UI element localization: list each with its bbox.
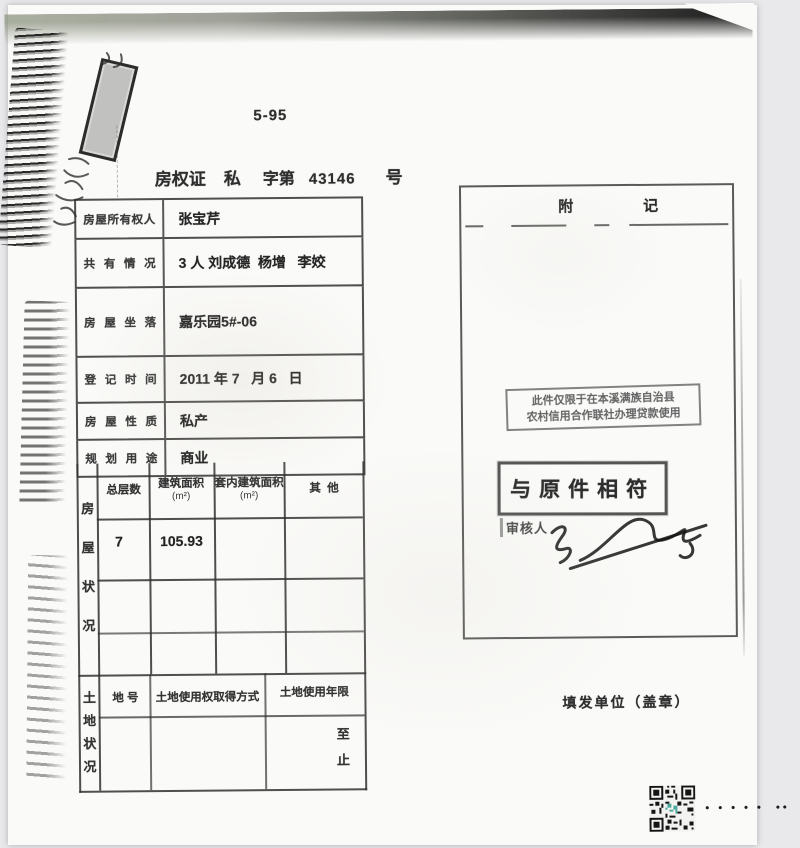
- row-label-text: 房屋所有权人: [83, 211, 155, 228]
- notes-title-a: 附: [558, 195, 573, 216]
- grid-line: [362, 461, 367, 790]
- row-value: 3 人 刘成德 杨增 李姣: [164, 237, 361, 286]
- row-label-text: 共有情况: [84, 255, 156, 272]
- col-header-inner-area-unit: (m²): [215, 490, 284, 502]
- notes-rule-segment: [511, 225, 566, 227]
- handwritten-signature: [534, 485, 725, 577]
- col-header-floors: 总层数: [99, 481, 149, 497]
- notes-title-b: 记: [643, 195, 658, 216]
- col-header-area: 建筑面积: [150, 475, 211, 492]
- notes-rule-segment: [629, 223, 728, 226]
- row-label: 房屋所有权人: [76, 200, 164, 238]
- table-row: 房屋坐落 嘉乐园5#-06: [75, 286, 365, 358]
- row-value: 私产: [166, 401, 363, 438]
- scan-artifact-left-low: [26, 555, 68, 780]
- grid-line: [97, 577, 363, 581]
- row-value: 张宝芹: [164, 198, 361, 237]
- house-status-side-label: 房屋状况: [76, 464, 98, 675]
- notes-box: 附 记 此件仅限于在本溪满族自治县 农村信用合作联社办理贷款使用 与原件相符 审…: [459, 183, 738, 639]
- grid-line: [79, 788, 367, 793]
- row-label-text: 登记时间: [85, 371, 157, 388]
- col-header-area-unit: (m²): [151, 491, 212, 503]
- cert-category: 私: [224, 169, 241, 188]
- notes-rule-segment: [465, 225, 483, 227]
- notes-title: 附 记: [461, 194, 732, 196]
- qr-footer: • • • • • ••: [649, 785, 790, 832]
- series-label: 字第: [263, 171, 295, 188]
- form-code: 5-95: [253, 107, 287, 124]
- scan-shadow-band: [4, 8, 752, 47]
- cert-type: 房权证: [155, 170, 206, 189]
- issuer-label: 填发单位（盖章）: [562, 691, 690, 712]
- grid-line: [97, 516, 363, 520]
- col-header-lot-number: 地 号: [102, 689, 148, 705]
- row-value: 嘉乐园5#-06: [165, 286, 363, 355]
- page-crease: [740, 279, 745, 657]
- land-status-side-label: 土地状况: [78, 675, 99, 791]
- col-header-land-right-method: 土地使用权取得方式: [151, 688, 263, 705]
- row-label-text: 房屋性质: [85, 413, 157, 430]
- number-suffix: 号: [385, 168, 402, 187]
- land-term-stop: 止: [337, 749, 350, 768]
- grid-line: [78, 672, 366, 677]
- owner-info-table: 房屋所有权人 张宝芹 共有情况 3 人 刘成德 杨增 李姣 房屋坐落 嘉乐园5#…: [74, 196, 365, 478]
- scan-artifact-left-mid: [19, 301, 70, 507]
- document-content: 5-95 房权证私字第43146号 房屋所有权人 张宝芹 共有情况 3 人 刘成…: [0, 0, 800, 848]
- notes-rule-segment: [594, 224, 609, 226]
- serial-number: 43146: [309, 170, 356, 187]
- dot-row: • • • • • ••: [705, 802, 789, 815]
- row-label: 房屋坐落: [77, 288, 166, 356]
- restriction-stamp: 此件仅限于在本溪满族自治县 农村信用合作联社办理贷款使用: [505, 383, 701, 431]
- grid-line: [99, 714, 365, 718]
- row-label: 登记时间: [77, 357, 165, 402]
- land-term-to: 至: [337, 723, 350, 742]
- floor-area-value: 105.93: [160, 533, 203, 549]
- qr-code: [649, 785, 695, 831]
- row-label: 房屋性质: [78, 403, 166, 439]
- row-label: 共有情况: [76, 239, 164, 287]
- col-header-inner-area: 套内建筑面积: [214, 474, 283, 491]
- table-row: 共有情况 3 人 刘成德 杨增 李姣: [74, 237, 363, 289]
- row-label-text: 房屋坐落: [84, 314, 156, 331]
- grid-line: [98, 630, 364, 634]
- table-row: 房屋所有权人 张宝芹: [74, 196, 363, 240]
- status-tables: 房屋状况 总层数 建筑面积 (m²) 套内建筑面积 (m²) 其 他 7 105…: [76, 461, 367, 793]
- row-value: 2011 年 7 月 6 日: [165, 355, 362, 401]
- table-row: 房屋性质 私产: [76, 401, 365, 441]
- col-header-land-term: 土地使用年限: [266, 683, 362, 700]
- col-header-other: 其 他: [286, 479, 363, 496]
- table-row: 登记时间 2011 年 7 月 6 日: [75, 355, 364, 404]
- floors-value: 7: [115, 533, 123, 549]
